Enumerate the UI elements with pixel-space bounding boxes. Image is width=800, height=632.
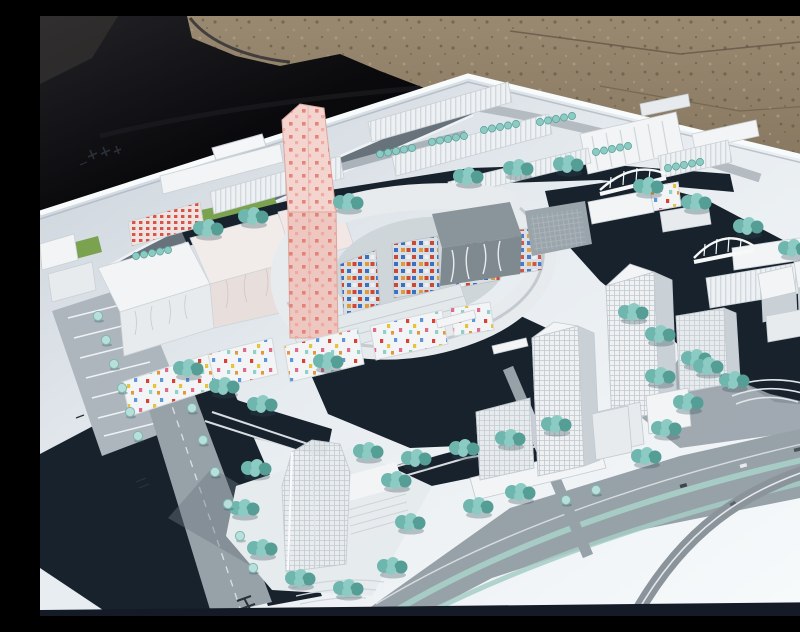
photo-of-architectural-model: Architectural scale model of a waterfron…: [40, 16, 800, 616]
model-photo-canvas: [40, 16, 800, 616]
